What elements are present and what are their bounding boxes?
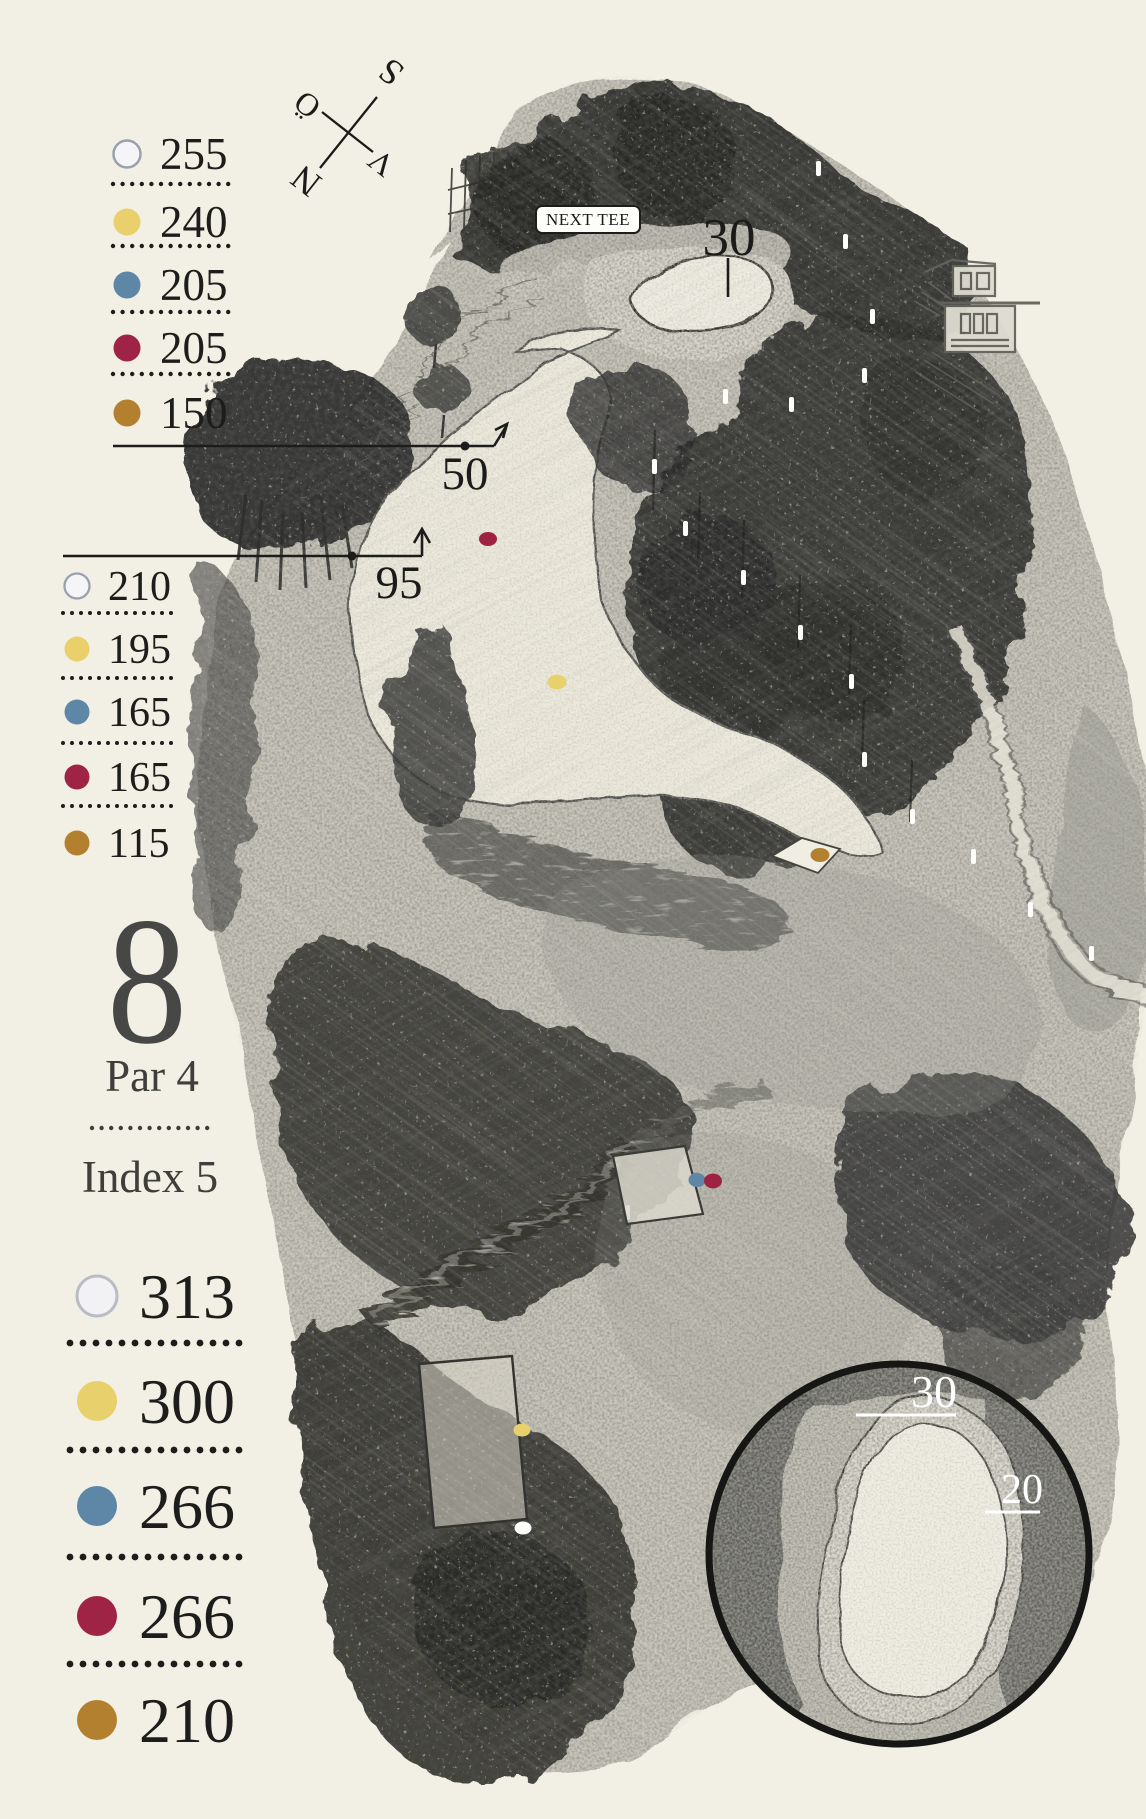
svg-text:313: 313 — [139, 1261, 235, 1332]
svg-text:95: 95 — [376, 557, 423, 609]
svg-text:Index 5: Index 5 — [82, 1152, 218, 1202]
svg-text:165: 165 — [108, 690, 171, 736]
svg-text:50: 50 — [442, 448, 489, 500]
svg-text:30: 30 — [703, 209, 756, 267]
svg-text:205: 205 — [160, 323, 228, 373]
svg-text:240: 240 — [160, 197, 228, 247]
svg-text:210: 210 — [108, 564, 171, 610]
svg-text:30: 30 — [911, 1366, 957, 1417]
svg-text:115: 115 — [108, 821, 169, 867]
svg-text:Par 4: Par 4 — [105, 1051, 199, 1101]
svg-text:300: 300 — [139, 1366, 235, 1437]
svg-text:255: 255 — [160, 129, 228, 179]
svg-text:195: 195 — [108, 627, 171, 673]
svg-text:165: 165 — [108, 755, 171, 801]
svg-text:210: 210 — [139, 1685, 235, 1756]
svg-text:NEXT TEE: NEXT TEE — [546, 210, 630, 229]
svg-text:150: 150 — [160, 388, 228, 438]
svg-text:205: 205 — [160, 260, 228, 310]
svg-text:266: 266 — [139, 1581, 235, 1652]
svg-text:20: 20 — [1001, 1467, 1043, 1513]
svg-text:266: 266 — [139, 1471, 235, 1542]
